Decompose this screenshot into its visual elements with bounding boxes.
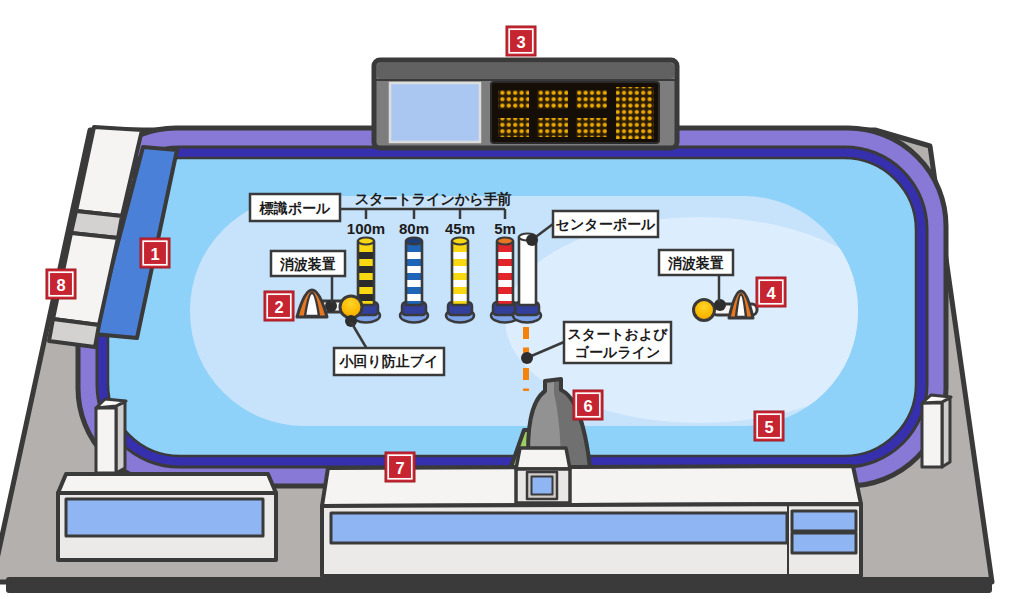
- callout-dot: [526, 234, 538, 246]
- led-block: [537, 118, 568, 137]
- distance-caption: スタートラインから手前: [355, 191, 512, 207]
- badge-3: 3: [506, 26, 536, 56]
- boatrace-course-diagram: スタートラインから手前 100m 80m 45m 5m: [0, 0, 1035, 599]
- badge-number: 8: [56, 276, 65, 294]
- led-block: [498, 90, 529, 109]
- label-text: 標識ポール: [259, 200, 331, 216]
- diagram-canvas: スタートラインから手前 100m 80m 45m 5m: [0, 0, 1035, 599]
- label-text: センターポール: [556, 216, 656, 232]
- scoreboard: [374, 60, 677, 148]
- buoy-ball: [694, 300, 715, 321]
- distance-80m: 80m: [399, 220, 429, 237]
- grandstand-window-small: [792, 533, 856, 553]
- badge-7: 7: [385, 452, 415, 482]
- led-block: [576, 90, 607, 109]
- tower-pedestal: [516, 448, 570, 503]
- label-text: スタートおよび: [568, 326, 669, 342]
- badge-number: 7: [395, 459, 404, 477]
- distance-5m: 5m: [494, 220, 516, 237]
- scoreboard-screen: [390, 83, 480, 142]
- badge-number: 5: [764, 418, 773, 436]
- led-block: [498, 118, 529, 137]
- left-building-roof: [58, 474, 276, 493]
- callout-dot: [521, 352, 533, 364]
- pit-building-band-2: [49, 319, 99, 347]
- badge-8: 8: [46, 269, 76, 299]
- led-block-large: [616, 87, 654, 139]
- callout-dot: [345, 315, 357, 327]
- badge-number: 6: [583, 397, 592, 415]
- label-text: 小回り防止ブイ: [339, 353, 439, 369]
- scoreboard-top-bevel: [377, 63, 674, 79]
- left-building: [58, 474, 276, 560]
- led-block: [576, 118, 607, 137]
- label-text: 消波装置: [667, 255, 724, 271]
- label-marker-pole: 標識ポール: [250, 194, 340, 221]
- label-text: ゴールライン: [575, 344, 661, 360]
- small-turn-buoy: [340, 296, 362, 318]
- left-pillar: [96, 399, 126, 473]
- label-text: 消波装置: [279, 256, 336, 272]
- pedestal-window: [532, 477, 553, 495]
- badge-number: 4: [766, 284, 776, 302]
- grandstand-window-strip: [331, 513, 787, 543]
- badge-1: 1: [140, 238, 170, 268]
- badge-4: 4: [756, 277, 786, 307]
- badge-6: 6: [573, 390, 603, 420]
- ground-front-edge: [6, 577, 992, 593]
- badge-number: 2: [274, 298, 283, 316]
- left-building-window: [66, 499, 263, 536]
- badge-number: 3: [516, 33, 525, 51]
- right-pillar: [922, 395, 951, 467]
- badge-2: 2: [264, 291, 294, 321]
- badge-5: 5: [754, 411, 784, 441]
- grandstand-window-small: [792, 511, 856, 531]
- badge-number: 1: [150, 245, 159, 263]
- distance-100m: 100m: [347, 220, 385, 237]
- distance-45m: 45m: [445, 220, 475, 237]
- pedestal-top: [516, 448, 570, 469]
- led-block: [537, 90, 568, 109]
